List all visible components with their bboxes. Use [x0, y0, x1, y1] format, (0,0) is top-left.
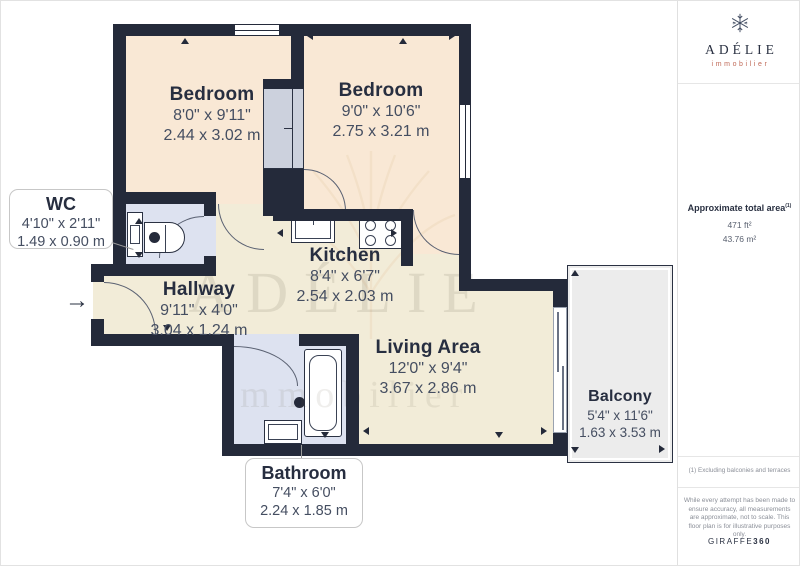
- room-dim-imperial: 5'4" x 11'6": [568, 407, 672, 424]
- room-dim-metric: 1.63 x 3.53 m: [568, 424, 672, 441]
- sidebar-divider: [678, 456, 800, 457]
- room-dim-imperial: 9'0" x 10'6": [291, 102, 471, 122]
- measure-arrow-icon: [571, 447, 579, 453]
- sliding-door: [553, 307, 567, 433]
- room-name: Kitchen: [257, 244, 433, 267]
- room-name: Hallway: [119, 278, 279, 301]
- toilet-cistern-dot: [149, 232, 160, 243]
- shower-head-dot: [294, 397, 305, 408]
- room-name: Bedroom: [291, 79, 471, 102]
- wall: [553, 431, 567, 456]
- wc-doorway-floor: [204, 216, 216, 256]
- info-sidebar: ADÉLIE immobilier Approximate total area…: [677, 1, 800, 566]
- kitchen-label: Kitchen 8'4" x 6'7" 2.54 x 2.03 m: [257, 244, 433, 307]
- window: [234, 24, 280, 36]
- bathtub: [304, 349, 342, 437]
- wc-sink-basin: [130, 225, 140, 244]
- window-glass-line: [235, 30, 279, 31]
- room-name: Living Area: [338, 336, 518, 359]
- measure-arrow-icon: [181, 38, 189, 44]
- room-name: WC: [10, 193, 112, 215]
- room-dim-metric: 2.54 x 2.03 m: [257, 287, 433, 307]
- bathroom-sink-basin: [268, 424, 298, 440]
- logo-text: ADÉLIE: [678, 42, 800, 58]
- wall: [222, 444, 567, 456]
- room-name: Bathroom: [246, 462, 362, 484]
- room-dim-metric: 2.24 x 1.85 m: [246, 502, 362, 520]
- room-dim-metric: 3.67 x 2.86 m: [338, 379, 518, 399]
- room-dim-metric: 1.49 x 0.90 m: [10, 233, 112, 251]
- sidebar-divider: [678, 487, 800, 488]
- measure-arrow-icon: [307, 32, 313, 40]
- measure-arrow-icon: [135, 252, 143, 258]
- wall: [113, 264, 216, 276]
- area-metric: 43.76 m²: [678, 234, 800, 244]
- giraffe360-suffix: 360: [753, 537, 771, 546]
- area-imperial: 471 ft²: [678, 220, 800, 230]
- sliding-panel-line: [562, 366, 564, 430]
- room-dim-imperial: 4'10" x 2'11": [10, 215, 112, 233]
- measure-arrow-icon: [659, 445, 665, 453]
- bedroom-right-label: Bedroom 9'0" x 10'6" 2.75 x 3.21 m: [291, 79, 471, 142]
- measure-arrow-icon: [541, 427, 547, 435]
- room-dim-imperial: 8'0" x 9'11": [122, 106, 302, 126]
- measure-arrow-icon: [449, 32, 455, 40]
- room-dim-metric: 2.44 x 3.02 m: [122, 126, 302, 146]
- room-dim-imperial: 8'4" x 6'7": [257, 267, 433, 287]
- floor-plan-page: → ADÉLIE immobilier Bedroom 8'0" x 9'11"…: [0, 0, 800, 566]
- toilet-line: [165, 225, 166, 252]
- toilet: [144, 222, 185, 253]
- disclaimer: While every attempt has been made to ens…: [678, 497, 800, 540]
- room-dim-imperial: 7'4" x 6'0": [246, 484, 362, 502]
- giraffe360-logo: GIRAFFE360: [678, 537, 800, 546]
- wall: [204, 192, 216, 216]
- measure-arrow-icon: [321, 432, 329, 438]
- wall: [553, 279, 567, 309]
- area-block: Approximate total area(1) 471 ft² 43.76 …: [678, 203, 800, 244]
- footnote: (1) Excluding balconies and terraces: [678, 467, 800, 474]
- snowflake-icon: [729, 11, 751, 35]
- bedroom-left-label: Bedroom 8'0" x 9'11" 2.44 x 3.02 m: [122, 83, 302, 146]
- wall: [459, 179, 471, 291]
- sliding-panel-line: [557, 312, 559, 372]
- bathroom-callout: Bathroom 7'4" x 6'0" 2.24 x 1.85 m: [245, 458, 363, 528]
- bathroom-sink: [264, 420, 302, 444]
- measure-arrow-icon: [135, 218, 143, 224]
- measure-arrow-icon: [363, 427, 369, 435]
- living-area-label: Living Area 12'0" x 9'4" 3.67 x 2.86 m: [338, 336, 518, 399]
- room-name: Bedroom: [122, 83, 302, 106]
- hob-burner: [365, 220, 376, 231]
- room-dim-imperial: 12'0" x 9'4": [338, 359, 518, 379]
- wall: [113, 24, 471, 36]
- measure-arrow-icon: [391, 229, 397, 237]
- wall: [459, 279, 567, 291]
- wall: [263, 192, 304, 204]
- room-dim-metric: 2.75 x 3.21 m: [291, 122, 471, 142]
- logo-block: ADÉLIE immobilier: [678, 11, 800, 68]
- hallway-label: Hallway 9'11" x 4'0" 3.04 x 1.24 m: [119, 278, 279, 341]
- area-title: Approximate total area: [688, 203, 786, 213]
- entrance-arrow-icon: →: [65, 289, 89, 313]
- wall: [222, 334, 234, 456]
- measure-arrow-icon: [277, 229, 283, 237]
- callout-leader-line: [301, 445, 302, 459]
- logo-subtext: immobilier: [678, 61, 800, 68]
- room-name: Balcony: [568, 387, 672, 407]
- measure-arrow-icon: [495, 432, 503, 438]
- measure-arrow-icon: [399, 38, 407, 44]
- sidebar-divider: [678, 83, 800, 84]
- bedroom-left-doorway-floor: [216, 192, 263, 204]
- bathtub-inner: [309, 355, 337, 431]
- room-dim-metric: 3.04 x 1.24 m: [119, 321, 279, 341]
- wall: [91, 264, 104, 282]
- wall: [291, 36, 304, 79]
- measure-arrow-icon: [571, 270, 579, 276]
- wall: [113, 192, 216, 204]
- balcony-label: Balcony 5'4" x 11'6" 1.63 x 3.53 m: [568, 387, 672, 441]
- room-dim-imperial: 9'11" x 4'0": [119, 301, 279, 321]
- area-superscript: (1): [785, 203, 791, 209]
- wc-callout: WC 4'10" x 2'11" 1.49 x 0.90 m: [9, 189, 113, 249]
- giraffe360-prefix: GIRAFFE: [708, 537, 753, 546]
